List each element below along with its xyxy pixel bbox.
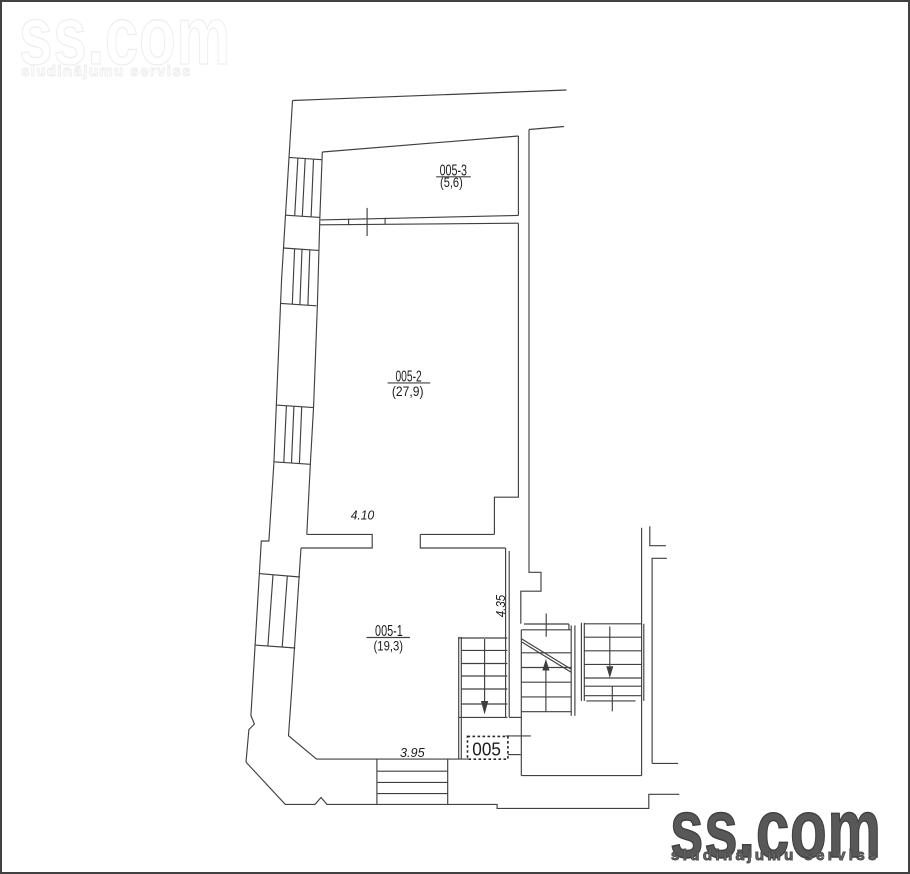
svg-text:4.35: 4.35 <box>494 595 508 618</box>
svg-text:005: 005 <box>472 739 501 759</box>
svg-text:(19,3): (19,3) <box>374 639 404 654</box>
svg-text:(5,6): (5,6) <box>440 175 463 190</box>
svg-text:(27,9): (27,9) <box>392 384 424 399</box>
svg-text:4.10: 4.10 <box>351 507 375 522</box>
svg-text:3.95: 3.95 <box>400 745 425 760</box>
